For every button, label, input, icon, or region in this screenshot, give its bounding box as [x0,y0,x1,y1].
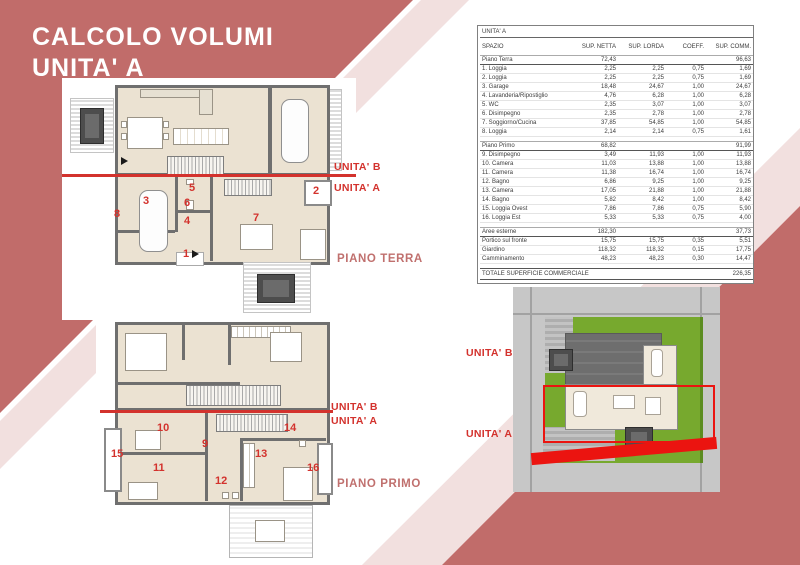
table-row: SPAZIOSUP. NETTASUP. LORDACOEFF.SUP. COM… [480,42,753,51]
label-unit-a-site: UNITA' A [466,428,512,440]
table-row: 6. Disimpegno2,352,781,002,78 [480,110,753,119]
chair [121,121,127,128]
room-number-10: 10 [157,423,169,434]
table-cell: 16,74 [706,169,753,178]
car-outline [281,99,309,163]
room-number-4: 4 [184,216,190,227]
bath-fixture [299,440,306,447]
wall-segment [205,412,208,501]
table-cell: 7. Soggiorno/Cucina [480,119,574,128]
table-cell: 2,14 [574,128,618,137]
table-cell: Portico sul fronte [480,237,574,246]
table-cell: 182,30 [574,228,618,237]
table-cell: 11,93 [706,151,753,160]
table-cell: 8,42 [706,196,753,205]
table-cell: 2,35 [574,101,618,110]
table-cell: 0,75 [666,74,706,83]
page-title-line1: CALCOLO VOLUMI [32,22,274,53]
label-unit-b-site: UNITA' B [466,347,513,359]
table-cell: 2,25 [574,65,618,74]
area-table-grid: UNITA' ASPAZIOSUP. NETTASUP. LORDACOEFF.… [480,27,753,280]
room-number-13: 13 [255,449,267,460]
table-cell: 21,88 [706,187,753,196]
room-number-5: 5 [189,183,195,194]
table-cell: 8,42 [618,196,666,205]
wall-segment [175,210,210,213]
table-cell: 1,00 [666,151,706,160]
room-number-12: 12 [215,476,227,487]
table-cell: 7,86 [574,205,618,214]
table-cell: 0,35 [666,237,706,246]
table-row: Giardino118,32118,320,1517,75 [480,246,753,255]
entry-door-marker [121,157,128,165]
table-cell: 72,43 [574,56,618,65]
table-cell: 1,00 [666,169,706,178]
table-cell: 17,75 [706,246,753,255]
table-cell: 1,00 [666,187,706,196]
room-number-9: 9 [202,439,208,450]
table-row: TOTALE SUPERFICIE COMMERCIALE226,35 [480,269,753,280]
table-row: 9. Disimpegno3,4911,931,0011,93 [480,151,753,160]
wall-segment [118,452,205,455]
site-car [651,349,663,377]
bath-fixture [222,492,229,499]
table-cell: 226,35 [706,269,753,280]
table-cell [618,142,666,151]
site-outdoor-table-top [554,354,568,366]
table-cell: SUP. COMM. [706,42,753,51]
table-cell: 11,03 [574,160,618,169]
label-unit-a-terra: UNITA' A [334,182,380,194]
table-row: 16. Loggia Est5,335,330,754,00 [480,214,753,223]
room-number-15: 15 [111,449,123,460]
kitchen-counter [140,89,202,98]
table-cell: 68,82 [574,142,618,151]
kitchen-island [173,128,229,145]
table-cell: 18,48 [574,83,618,92]
table-cell: 6,86 [574,178,618,187]
table-cell: 0,75 [666,65,706,74]
table-cell: SUP. NETTA [574,42,618,51]
outdoor-table [255,520,285,542]
site-road-line [513,313,720,315]
table-cell: Giardino [480,246,574,255]
table-row: 3. Garage18,4824,671,0024,67 [480,83,753,92]
unit-divider-line [100,410,333,413]
table-cell: 4,00 [706,214,753,223]
table-cell: 54,85 [618,119,666,128]
site-unit-a-outline [543,385,715,443]
page: CALCOLO VOLUMI UNITA' A [0,0,800,565]
table-cell: 4,76 [574,92,618,101]
room-number-3: 3 [143,196,149,207]
label-piano-terra: PIANO TERRA [337,253,423,265]
table-cell: 37,73 [706,228,753,237]
table-cell: 3. Garage [480,83,574,92]
table-cell: Piano Terra [480,56,574,65]
room-number-1: 1 [183,249,189,260]
table-row: 14. Bagno5,828,421,008,42 [480,196,753,205]
table-cell: 14,47 [706,255,753,264]
table-cell: 2,78 [618,110,666,119]
room-number-8: 8 [114,209,120,220]
table-cell: 24,67 [618,83,666,92]
table-cell: 2,25 [574,74,618,83]
loggia-15 [104,428,122,492]
table-cell: 11. Camera [480,169,574,178]
table-row: 15. Loggia Ovest7,867,860,755,90 [480,205,753,214]
table-cell: 37,85 [574,119,618,128]
unit-divider-line [62,174,356,177]
bed [128,482,158,500]
table-cell: 5,90 [706,205,753,214]
entry-door-marker [192,250,199,258]
area-table: UNITA' ASPAZIOSUP. NETTASUP. LORDACOEFF.… [477,25,754,284]
table-cell: 6,28 [706,92,753,101]
table-cell: 1,00 [666,83,706,92]
table-cell: 0,75 [666,205,706,214]
table-cell: Aree esterne [480,228,574,237]
table-row: 4. Lavanderia/Ripostiglio4,766,281,006,2… [480,92,753,101]
table-cell: 48,23 [574,255,618,264]
table-row: UNITA' A [480,27,753,38]
bed [125,333,167,371]
table-cell: 1,00 [666,196,706,205]
table-row: 10. Camera11,0313,881,0013,88 [480,160,753,169]
table-cell: 1,69 [706,74,753,83]
bed [270,332,302,362]
table-cell: 24,67 [706,83,753,92]
bath-fixture [232,492,239,499]
table-cell: 6,28 [618,92,666,101]
table-cell: 16. Loggia Est [480,214,574,223]
dining-table [127,117,163,149]
wall-segment [210,177,213,261]
room-number-7: 7 [253,213,259,224]
table-cell [666,56,706,65]
table-cell: 8. Loggia [480,128,574,137]
stairs [216,414,288,432]
kitchen-cabinet [199,89,213,115]
table-row: Piano Terra72,4396,63 [480,56,753,65]
table-cell [618,56,666,65]
table-cell: COEFF. [666,42,706,51]
table-cell: 118,32 [574,246,618,255]
room-number-2: 2 [313,186,319,197]
table-row: 1. Loggia2,252,250,751,69 [480,65,753,74]
table-cell: 21,88 [618,187,666,196]
table-cell: 1,00 [666,92,706,101]
table-cell [666,228,706,237]
table-cell: 6. Disimpegno [480,110,574,119]
table-cell: 16,74 [618,169,666,178]
table-cell: 118,32 [618,246,666,255]
wall-segment [268,88,272,177]
table-cell: 5. WC [480,101,574,110]
label-unit-a-primo: UNITA' A [331,415,377,427]
table-row: Camminamento48,2348,230,3014,47 [480,255,753,264]
dining-table [240,224,273,250]
page-title-line2: UNITA' A [32,53,274,84]
table-cell [618,228,666,237]
table-cell: 1,00 [666,160,706,169]
table-cell: 0,15 [666,246,706,255]
table-cell: 1,00 [666,101,706,110]
table-cell: 3,49 [574,151,618,160]
site-plan [513,287,720,492]
table-cell: Piano Primo [480,142,574,151]
table-cell: SUP. LORDA [618,42,666,51]
table-cell: 11,93 [618,151,666,160]
label-unit-b-terra: UNITA' B [334,161,381,173]
label-piano-primo: PIANO PRIMO [337,478,421,490]
table-cell: 13,88 [706,160,753,169]
table-cell: 7,86 [618,205,666,214]
floor-plan-piano-terra: 1 2 3 4 5 6 7 8 [62,78,356,320]
stairs [224,179,272,196]
side-deck [329,89,342,171]
table-cell: 11,38 [574,169,618,178]
table-row: 11. Camera11,3816,741,0016,74 [480,169,753,178]
room-number-6: 6 [184,198,190,209]
table-cell: 13. Camera [480,187,574,196]
chair [121,133,127,140]
table-cell: 9,25 [706,178,753,187]
table-cell: 17,05 [574,187,618,196]
table-cell: 4. Lavanderia/Ripostiglio [480,92,574,101]
table-row: 7. Soggiorno/Cucina37,8554,851,0054,85 [480,119,753,128]
wall-segment [240,438,326,441]
room-number-14: 14 [284,423,296,434]
table-cell: 5,51 [706,237,753,246]
wall-segment [175,177,178,232]
table-cell: UNITA' A [480,27,753,38]
table-cell: 54,85 [706,119,753,128]
table-cell: 1,61 [706,128,753,137]
room-number-16: 16 [307,463,319,474]
table-cell: 2,14 [618,128,666,137]
table-cell: 9. Disimpegno [480,151,574,160]
table-cell [666,142,706,151]
table-cell: 12. Bagno [480,178,574,187]
table-cell: 1,69 [706,65,753,74]
table-cell: 10. Camera [480,160,574,169]
table-cell: 0,30 [666,255,706,264]
table-cell: 9,25 [618,178,666,187]
table-cell: 5,33 [574,214,618,223]
table-cell: Camminamento [480,255,574,264]
table-cell: 2,25 [618,65,666,74]
table-cell: 0,75 [666,128,706,137]
table-row: 2. Loggia2,252,250,751,69 [480,74,753,83]
table-cell: 2,78 [706,110,753,119]
table-cell: 1. Loggia [480,65,574,74]
table-cell: 96,63 [706,56,753,65]
table-cell: 5,33 [618,214,666,223]
table-row: 5. WC2,353,071,003,07 [480,101,753,110]
table-cell: 1,00 [666,110,706,119]
table-cell: 14. Bagno [480,196,574,205]
table-cell: 13,88 [618,160,666,169]
table-cell: 48,23 [618,255,666,264]
table-row: Portico sul fronte15,7515,750,355,51 [480,237,753,246]
table-cell: 15,75 [574,237,618,246]
entry-porch [176,252,204,266]
wall-segment [182,322,185,360]
table-cell: 3,07 [618,101,666,110]
table-cell: 2,25 [618,74,666,83]
room-number-11: 11 [153,463,165,474]
stairs [186,385,281,406]
table-row: Piano Primo68,8291,99 [480,142,753,151]
table-row: Aree esterne182,3037,73 [480,228,753,237]
table-cell: 15,75 [618,237,666,246]
wardrobe [243,443,255,488]
chair [163,121,169,128]
sofa [300,229,326,260]
table-cell: 2. Loggia [480,74,574,83]
floor-plan-piano-primo: 9 10 11 12 13 14 15 16 [96,318,354,564]
table-row: 8. Loggia2,142,140,751,61 [480,128,753,137]
outdoor-table-top [263,280,289,297]
table-cell: SPAZIO [480,42,574,51]
table-cell: 1,00 [666,119,706,128]
table-cell: 15. Loggia Ovest [480,205,574,214]
chair [163,133,169,140]
table-cell: 2,35 [574,110,618,119]
table-cell: 5,82 [574,196,618,205]
table-cell: 0,75 [666,214,706,223]
page-title: CALCOLO VOLUMI UNITA' A [32,22,274,84]
outdoor-table-top [85,114,99,138]
table-cell: TOTALE SUPERFICIE COMMERCIALE [480,269,706,280]
table-row: 12. Bagno6,869,251,009,25 [480,178,753,187]
label-unit-b-primo: UNITA' B [331,401,378,413]
table-row: 13. Camera17,0521,881,0021,88 [480,187,753,196]
table-cell: 91,99 [706,142,753,151]
table-cell: 1,00 [666,178,706,187]
table-cell: 3,07 [706,101,753,110]
loggia-16 [317,443,333,495]
